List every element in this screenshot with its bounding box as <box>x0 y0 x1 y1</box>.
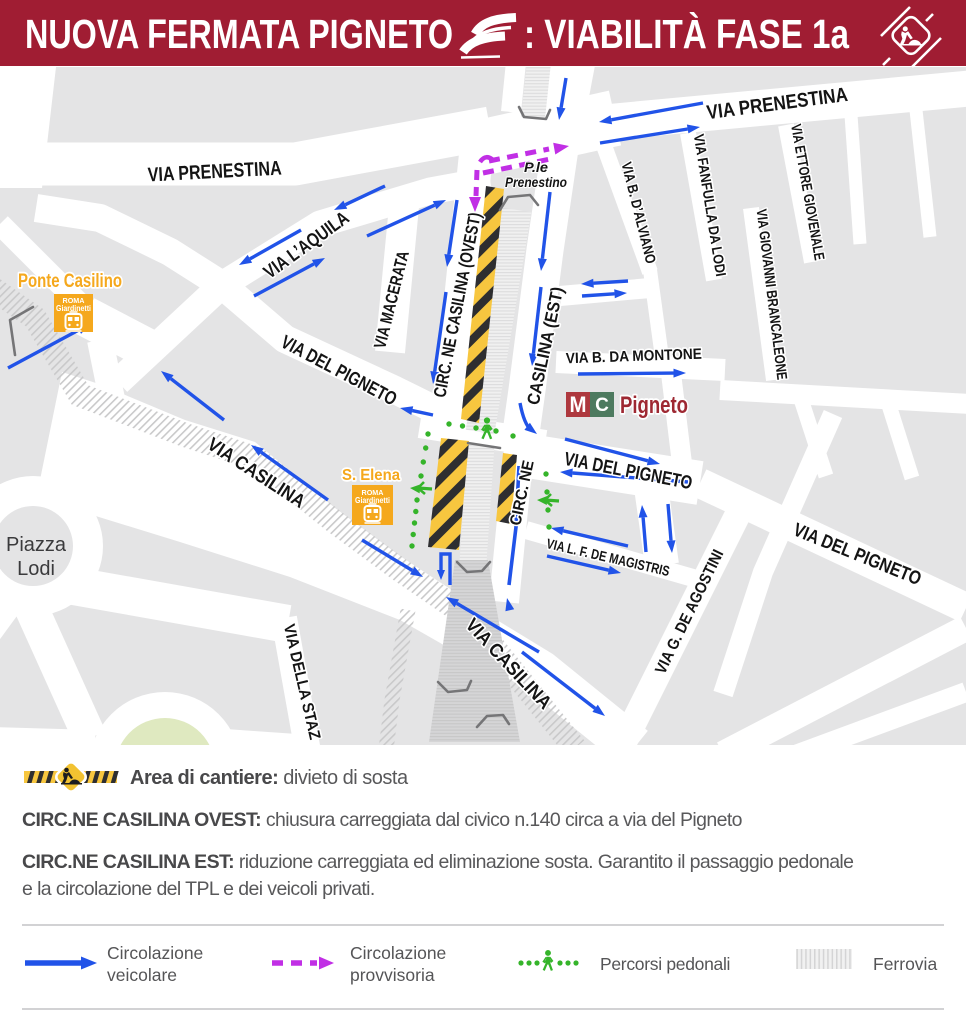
svg-text:Piazza: Piazza <box>6 534 67 556</box>
svg-text:M: M <box>570 392 587 417</box>
svg-text:Percorsi pedonali: Percorsi pedonali <box>600 954 730 974</box>
svg-text:CIRC.NE CASILINA OVEST: chiusu: CIRC.NE CASILINA OVEST: chiusura carregg… <box>22 809 743 831</box>
svg-text:: VIABILITÀ FASE 1a: : VIABILITÀ FASE 1a <box>524 11 850 57</box>
svg-text:S. Elena: S. Elena <box>342 467 400 484</box>
svg-text:Circolazione: Circolazione <box>350 943 446 963</box>
svg-text:Ferrovia: Ferrovia <box>873 954 937 974</box>
svg-text:Ponte Casilino: Ponte Casilino <box>18 271 122 292</box>
svg-text:NUOVA FERMATA PIGNETO: NUOVA FERMATA PIGNETO <box>25 11 453 57</box>
svg-text:Circolazione: Circolazione <box>107 943 203 963</box>
svg-text:Pigneto: Pigneto <box>620 392 688 419</box>
svg-text:e la circolazione del TPL e de: e la circolazione del TPL e dei veicoli … <box>22 878 375 900</box>
svg-text:provvisoria: provvisoria <box>350 965 435 985</box>
svg-text:CIRC.NE CASILINA EST: riduzion: CIRC.NE CASILINA EST: riduzione carreggi… <box>22 851 853 873</box>
svg-text:Area di cantiere: divieto di s: Area di cantiere: divieto di sosta <box>130 767 409 789</box>
svg-text:Lodi: Lodi <box>17 558 55 580</box>
svg-text:C: C <box>595 395 609 416</box>
svg-text:Prenestino: Prenestino <box>505 174 567 190</box>
svg-text:veicolare: veicolare <box>107 965 177 985</box>
svg-text:P.le: P.le <box>524 159 548 175</box>
